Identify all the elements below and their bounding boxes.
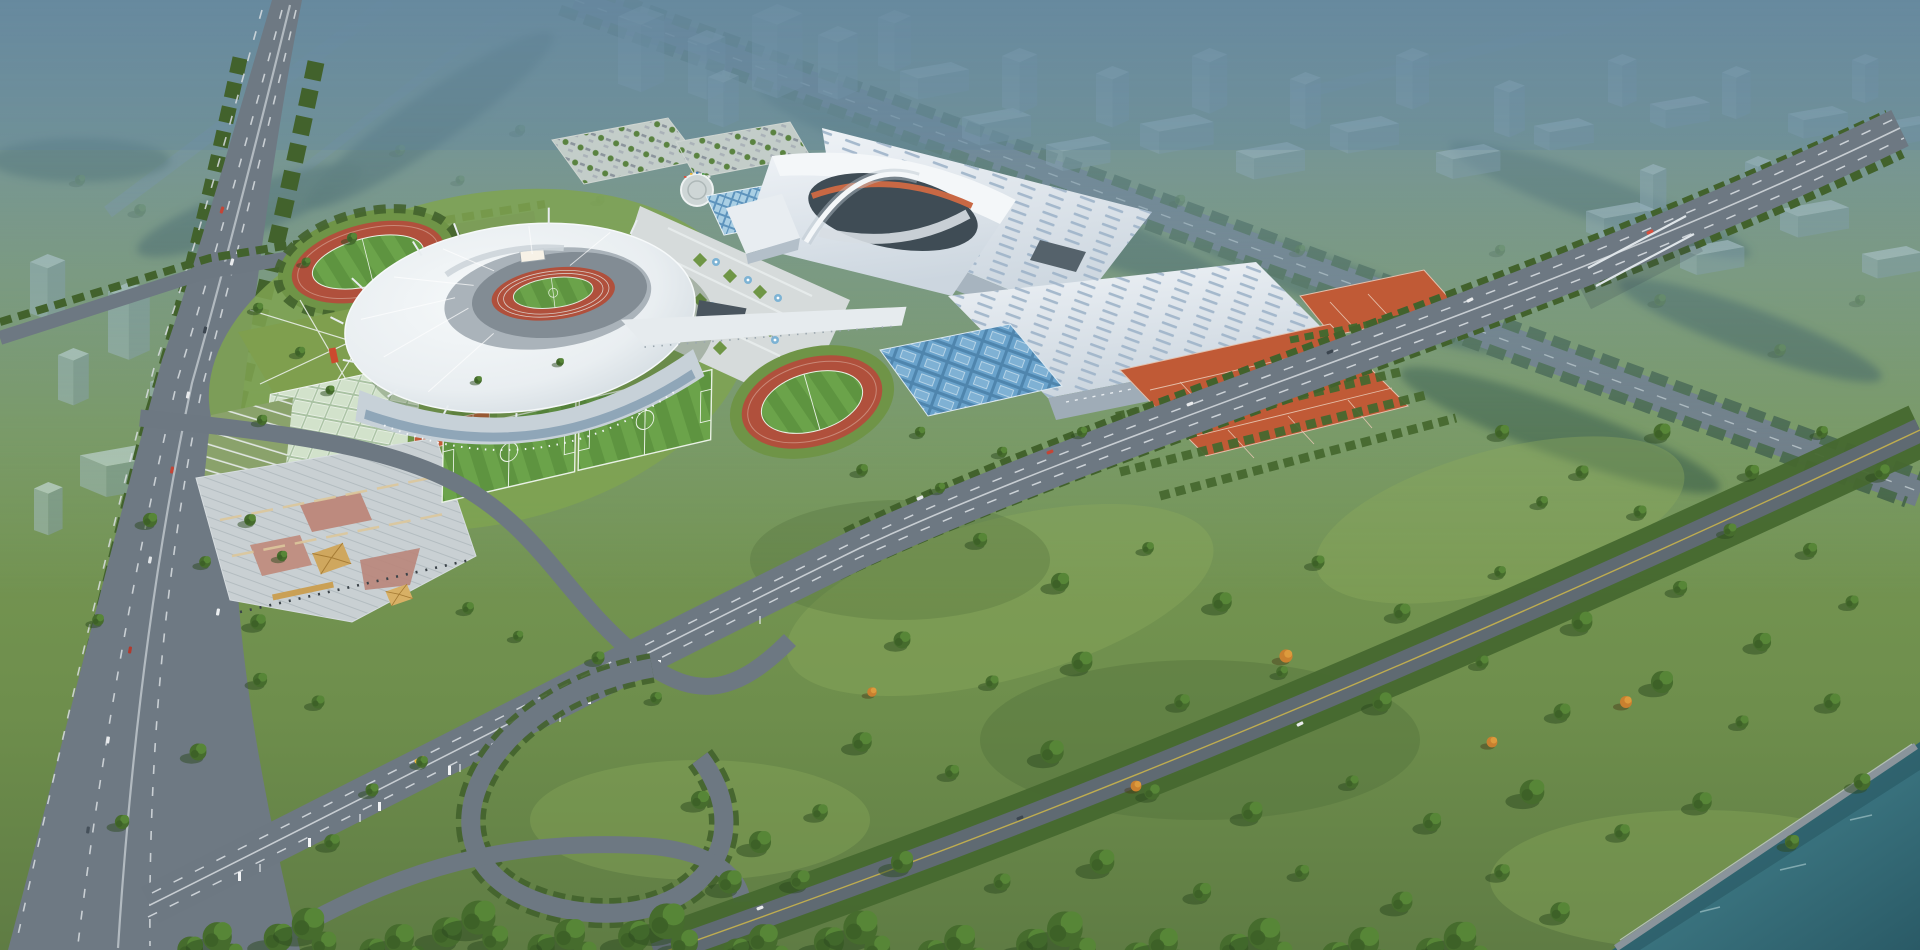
aerial-rendering <box>0 0 1920 950</box>
